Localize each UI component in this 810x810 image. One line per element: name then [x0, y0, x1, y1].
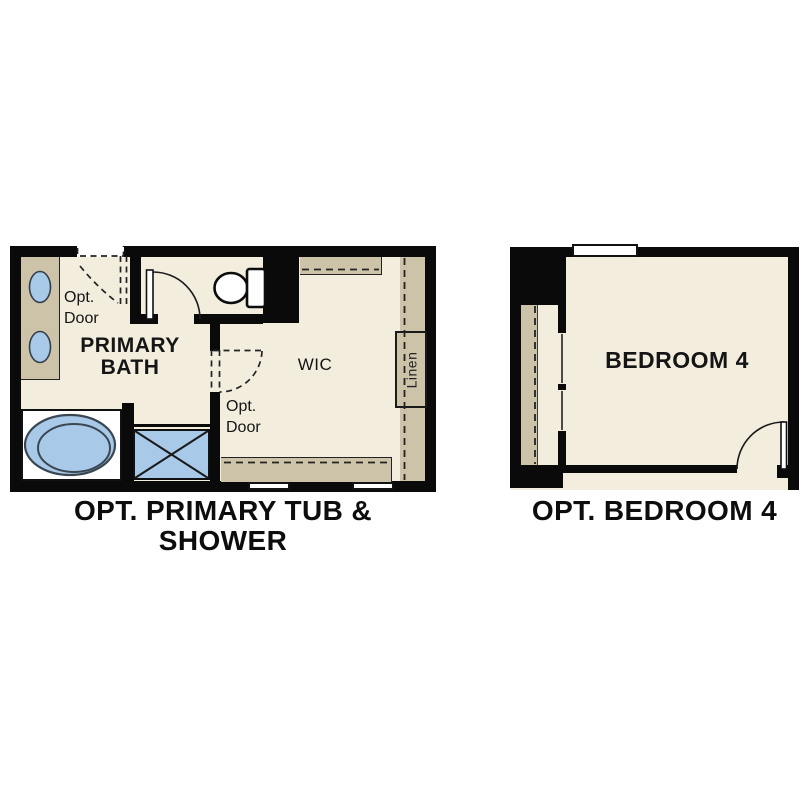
wall-left-seg1 [558, 303, 566, 333]
opt-door-mid-dashes [212, 350, 263, 392]
vanity-counter [21, 257, 60, 380]
wall-block-bottom-left [510, 465, 563, 488]
linen-closet-box: Linen [395, 331, 427, 408]
primary-bath-label: PRIMARY BATH [70, 335, 190, 379]
wall-left-seg2 [558, 431, 566, 465]
bedroom4-plan: BEDROOM 4 [510, 247, 799, 490]
wall-left [10, 246, 21, 492]
left-plan-caption: OPT. PRIMARY TUB & SHOWER [10, 496, 436, 556]
opt-door-opening-top [77, 246, 124, 257]
wall-wic-lower [210, 392, 220, 481]
toilet-icon [215, 269, 266, 307]
wall-toilet-jamb [130, 314, 158, 324]
tub-surround [21, 409, 122, 481]
linen-label: Linen [403, 351, 419, 388]
opt-door-top-line1: Opt. [64, 287, 99, 308]
wall-left-mullion [558, 384, 566, 390]
opt-door-top-line2: Door [64, 308, 99, 329]
opt-door-mid-line2: Door [226, 417, 261, 438]
opt-door-mid-line1: Opt. [226, 396, 261, 417]
primary-bath-line1: PRIMARY [70, 335, 190, 357]
wic-shelf-top [300, 257, 382, 275]
left-caption-line1: OPT. PRIMARY TUB & [10, 496, 436, 526]
opt-door-mid-label: Opt. Door [226, 396, 261, 438]
swing-door [737, 422, 787, 469]
wall-block-top-left [510, 247, 566, 305]
wall-block-toilet-right [263, 257, 299, 323]
bedroom4-label: BEDROOM 4 [567, 347, 787, 374]
wall-toilet-bottom [194, 314, 263, 324]
wall-toilet-left [130, 257, 141, 316]
floorplan-canvas: Linen [0, 0, 810, 810]
shower-entry-line [134, 424, 212, 427]
closet-strip [521, 305, 538, 465]
left-caption-line2: SHOWER [10, 526, 436, 556]
primary-bath-plan: Linen [10, 246, 436, 492]
swing-door [147, 270, 201, 319]
right-plan-caption: OPT. BEDROOM 4 [510, 496, 799, 526]
wic-shelf-bottom [221, 457, 392, 482]
opt-door-top-label: Opt. Door [64, 287, 99, 329]
wall-right [788, 247, 799, 490]
primary-bath-line2: BATH [70, 357, 190, 379]
wall-top [10, 246, 436, 257]
wic-label: WIC [285, 356, 345, 374]
window-marker [572, 244, 638, 257]
wall-bottom-line [563, 465, 737, 473]
door-marker-left [248, 482, 290, 490]
door-marker-right [352, 482, 394, 490]
door-jamb-block [777, 465, 788, 478]
shower-pan [133, 429, 210, 480]
wall-wic-upper [210, 324, 220, 351]
